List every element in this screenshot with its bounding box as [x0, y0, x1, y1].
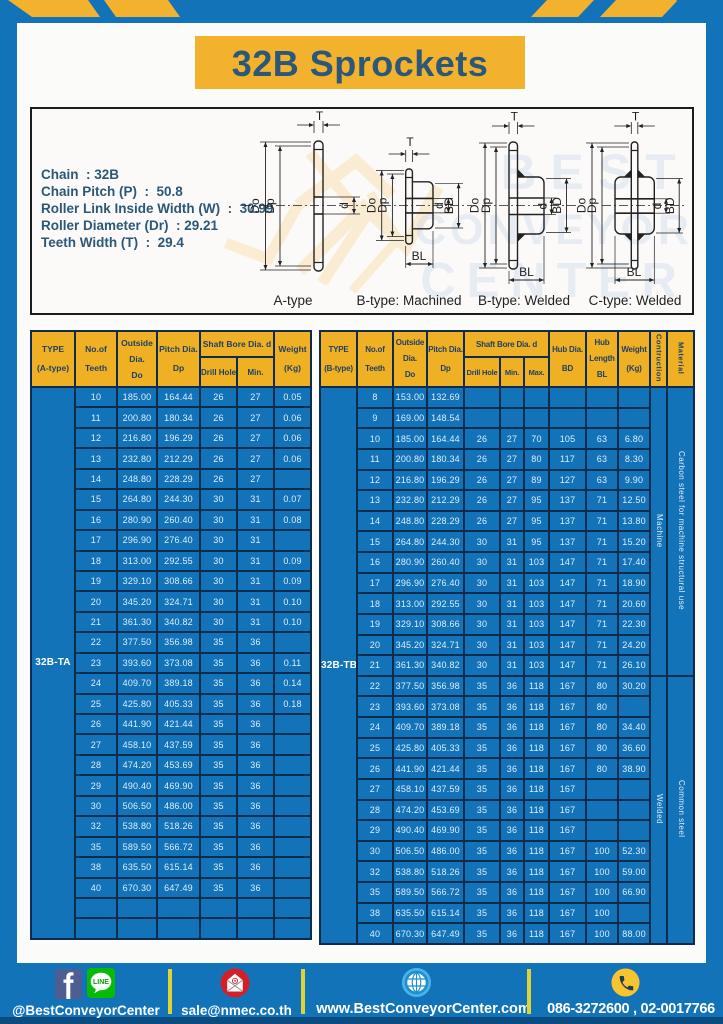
- svg-text:LINE: LINE: [93, 979, 109, 986]
- svg-text:BL: BL: [627, 265, 642, 279]
- svg-text:Do: Do: [248, 198, 262, 214]
- svg-text:T: T: [632, 110, 640, 124]
- svg-text:Dp: Dp: [585, 198, 599, 214]
- svg-text:BL: BL: [519, 265, 534, 279]
- svg-text:T: T: [316, 109, 324, 123]
- svg-text:BL: BL: [412, 249, 427, 263]
- svg-text:BD: BD: [550, 197, 564, 214]
- svg-text:C-type: Welded: C-type: Welded: [589, 293, 682, 308]
- svg-text:Dp: Dp: [376, 197, 390, 213]
- svg-text:BD: BD: [442, 197, 456, 214]
- svg-text:Dp: Dp: [263, 198, 277, 214]
- svg-text:B-type: Welded: B-type: Welded: [478, 293, 570, 308]
- svg-text:T: T: [511, 110, 519, 124]
- svg-text:Dp: Dp: [479, 198, 493, 214]
- svg-text:BD: BD: [663, 197, 677, 214]
- svg-text:B-type: Machined: B-type: Machined: [356, 293, 461, 308]
- svg-text:d: d: [536, 203, 550, 210]
- svg-text:d: d: [337, 202, 351, 209]
- svg-text:A-type: A-type: [273, 293, 312, 308]
- svg-text:T: T: [406, 135, 414, 149]
